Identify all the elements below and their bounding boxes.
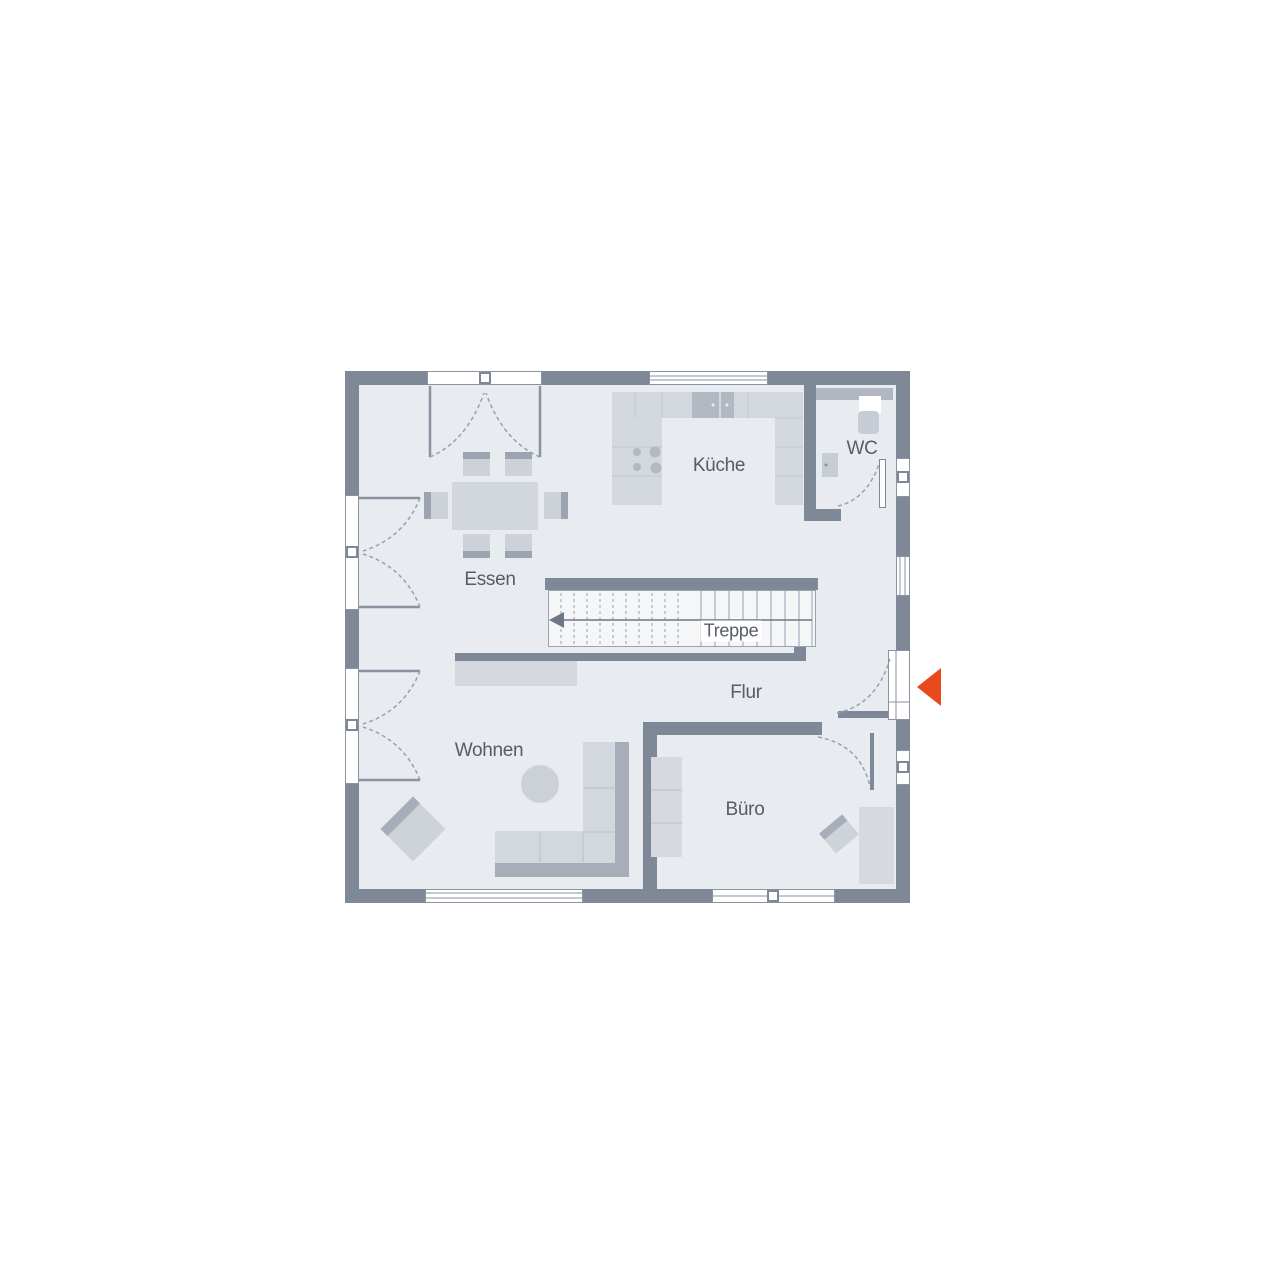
window-handle bbox=[346, 546, 358, 558]
toilet-bowl bbox=[858, 411, 879, 434]
dining-chair bbox=[463, 534, 490, 558]
kitchen-window bbox=[649, 371, 768, 385]
understair-wall bbox=[455, 653, 806, 661]
sofa-back-horizontal bbox=[495, 863, 629, 877]
room-label-kueche: Küche bbox=[693, 455, 745, 477]
staircase bbox=[548, 590, 816, 647]
room-label-flur: Flur bbox=[730, 682, 762, 704]
floorplan-canvas: Küche WC Essen Treppe Flur Wohnen Büro bbox=[0, 0, 1280, 1280]
kitchen-sink bbox=[721, 392, 734, 418]
sofa-cushions-horizontal bbox=[495, 831, 583, 863]
coffee-table bbox=[521, 765, 559, 803]
wc-bottom-wall bbox=[804, 509, 841, 521]
buero-shelf bbox=[651, 757, 682, 857]
sofa-back-vertical bbox=[615, 742, 629, 877]
window-handle bbox=[897, 761, 909, 773]
living-window-bottom bbox=[425, 889, 583, 903]
sofa-cushions-vertical bbox=[583, 742, 615, 863]
room-label-wc: WC bbox=[846, 438, 877, 460]
room-label-buero: Büro bbox=[726, 799, 765, 821]
sideboard bbox=[455, 661, 577, 686]
room-label-essen: Essen bbox=[464, 569, 515, 591]
window-handle bbox=[479, 372, 491, 384]
buero-top-wall bbox=[643, 722, 822, 735]
wc-left-wall bbox=[804, 385, 816, 521]
kitchen-oven bbox=[692, 392, 719, 418]
desk bbox=[859, 807, 894, 884]
wc-sink bbox=[822, 453, 838, 477]
dining-chair bbox=[505, 452, 532, 476]
dining-table bbox=[452, 482, 538, 530]
room-label-treppe: Treppe bbox=[701, 621, 762, 642]
entry-door bbox=[888, 650, 910, 720]
dining-chair bbox=[424, 492, 448, 519]
hall-window bbox=[896, 556, 910, 596]
wc-door-leaf bbox=[879, 459, 886, 508]
stair-step-block bbox=[794, 646, 806, 654]
stair-top-bar bbox=[545, 578, 818, 590]
dining-chair bbox=[463, 452, 490, 476]
window-handle bbox=[767, 890, 779, 902]
kitchen-counter-left bbox=[612, 418, 662, 505]
kitchen-counter-right bbox=[775, 392, 803, 505]
room-label-wohnen: Wohnen bbox=[455, 740, 524, 762]
entry-arrow-icon bbox=[917, 668, 941, 706]
window-handle bbox=[346, 719, 358, 731]
dining-chair bbox=[544, 492, 568, 519]
wc-shelf bbox=[816, 388, 893, 400]
dining-chair bbox=[505, 534, 532, 558]
window-handle bbox=[897, 471, 909, 483]
